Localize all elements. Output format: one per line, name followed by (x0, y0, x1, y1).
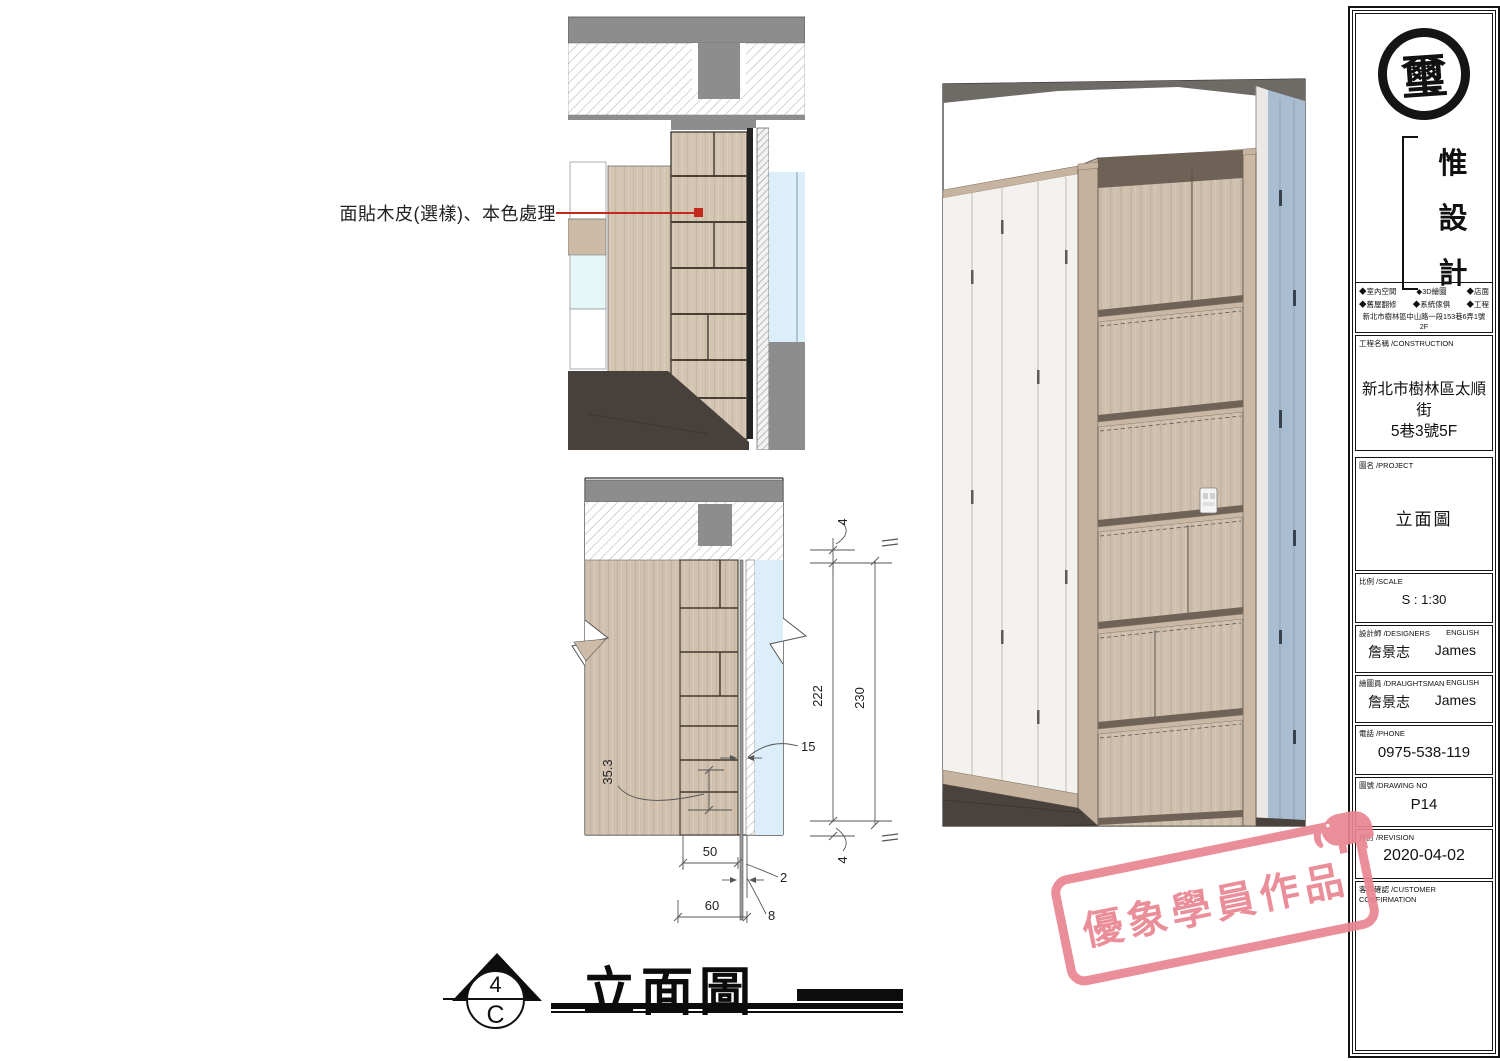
field-project: 圖名 /PROJECT 立面圖 (1355, 457, 1493, 571)
dim-angle-width: 35.3 (600, 759, 615, 784)
designer-name: 詹景志 (1368, 642, 1410, 662)
diamond-bullet-icon: ◆ (1467, 287, 1475, 296)
dim-inner-height: 222 (810, 685, 825, 707)
field-drawing-no: 圖號 /DRAWING NO P14 (1355, 777, 1493, 827)
annotation-leader-line (556, 212, 696, 214)
services-list: ◆室內空間 ◆3D繪圖 ◆店面 ◆舊屋翻修 ◆系統傢俱 ◆工程 新北市樹林區中山… (1356, 282, 1492, 331)
field-construction: 工程名稱 /CONSTRUCTION 新北市樹林區太順街 5巷3號5F (1355, 335, 1493, 451)
dim-inner-depth: 50 (703, 844, 717, 859)
section-marker-divider (443, 998, 531, 1000)
wall-switch (1200, 488, 1217, 513)
draughtsman-name: 詹景志 (1368, 692, 1410, 712)
field-draughtsman: 繪圖員 /DRAUGHTSMAN ENGLISH 詹景志 James (1355, 675, 1493, 723)
render-3d-perspective (938, 70, 1310, 832)
dim-recess: 15 (801, 739, 815, 754)
detail-section-view: 4 222 230 4 15 35.3 50 2 60 8 (570, 470, 910, 930)
elevation-section-view (568, 14, 805, 450)
service-item: ◆店面 (1467, 286, 1490, 297)
field-phone: 電話 /PHONE 0975-538-119 (1355, 725, 1493, 775)
dim-top-gap: 4 (835, 518, 850, 525)
material-annotation: 面貼木皮(選樣)、本色處理 (328, 200, 556, 226)
title-underline (551, 1003, 903, 1009)
brand-name: 惟 設 計 (1432, 140, 1474, 292)
phone-number: 0975-538-119 (1356, 744, 1492, 761)
title-underline-thin (551, 1011, 903, 1013)
watermark-stamp: 優象學員作品 (1048, 815, 1382, 988)
company-seal-icon: 璽 (1375, 25, 1473, 123)
dim-bottom-gap: 4 (835, 856, 850, 863)
service-item: ◆工程 (1467, 299, 1490, 310)
dim-overall-depth: 60 (705, 898, 719, 913)
construction-name-line2: 5巷3號5F (1356, 421, 1492, 442)
construction-name-line1: 新北市樹林區太順街 (1356, 379, 1492, 421)
logo-section: 璽 惟 設 計 ◆室內空間 ◆3D繪圖 ◆店面 ◆舊屋翻修 ◆系統傢俱 (1355, 13, 1493, 333)
brand-char-2: 設 (1438, 195, 1467, 237)
service-item: ◆室內空間 (1359, 286, 1397, 297)
diamond-bullet-icon: ◆ (1359, 287, 1367, 296)
designer-name-en: James (1435, 642, 1476, 662)
diamond-bullet-icon: ◆ (1467, 300, 1475, 309)
service-item: ◆3D繪圖 (1416, 286, 1446, 297)
drawing-sheet: 面貼木皮(選樣)、本色處理 (0, 0, 1500, 1061)
brand-char-1: 惟 (1438, 140, 1467, 182)
scale-value: S : 1:30 (1356, 592, 1492, 607)
watermark-text: 優象學員作品 (1077, 847, 1353, 958)
diamond-bullet-icon: ◆ (1359, 300, 1367, 309)
dim-reveal: 2 (780, 870, 787, 885)
project-name: 立面圖 (1356, 505, 1492, 530)
field-designers: 設計師 /DESIGNERS ENGLISH 詹景志 James (1355, 625, 1493, 673)
annotation-leader-dot (694, 208, 703, 217)
drawing-number: P14 (1356, 796, 1492, 813)
brand-bracket (1402, 136, 1418, 290)
drawing-title: 立面圖 (583, 950, 783, 1025)
dim-edge-offset: 8 (768, 908, 775, 923)
service-item: ◆系統傢俱 (1413, 299, 1451, 310)
service-item: ◆舊屋翻修 (1359, 299, 1397, 310)
dim-overall-height: 230 (852, 687, 867, 709)
section-marker-letter: C (466, 1001, 525, 1030)
field-scale: 比例 /SCALE S : 1:30 (1355, 573, 1493, 623)
draughtsman-name-en: James (1435, 692, 1476, 712)
company-address: 新北市樹林區中山路一段153巷6弄1號2F (1359, 312, 1489, 331)
title-underline-accent (797, 989, 903, 1001)
section-marker-number: 4 (466, 972, 525, 998)
